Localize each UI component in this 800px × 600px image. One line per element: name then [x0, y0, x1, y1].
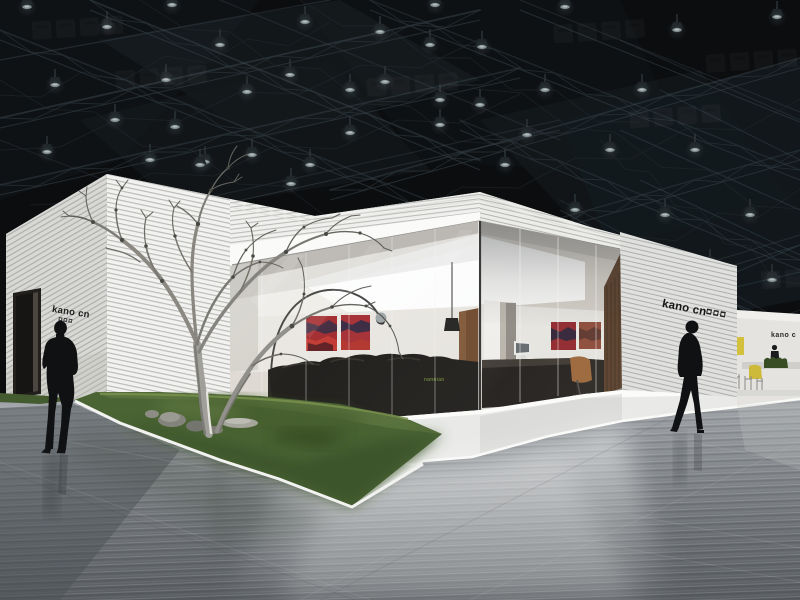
svg-text:kano c: kano c — [771, 332, 796, 339]
